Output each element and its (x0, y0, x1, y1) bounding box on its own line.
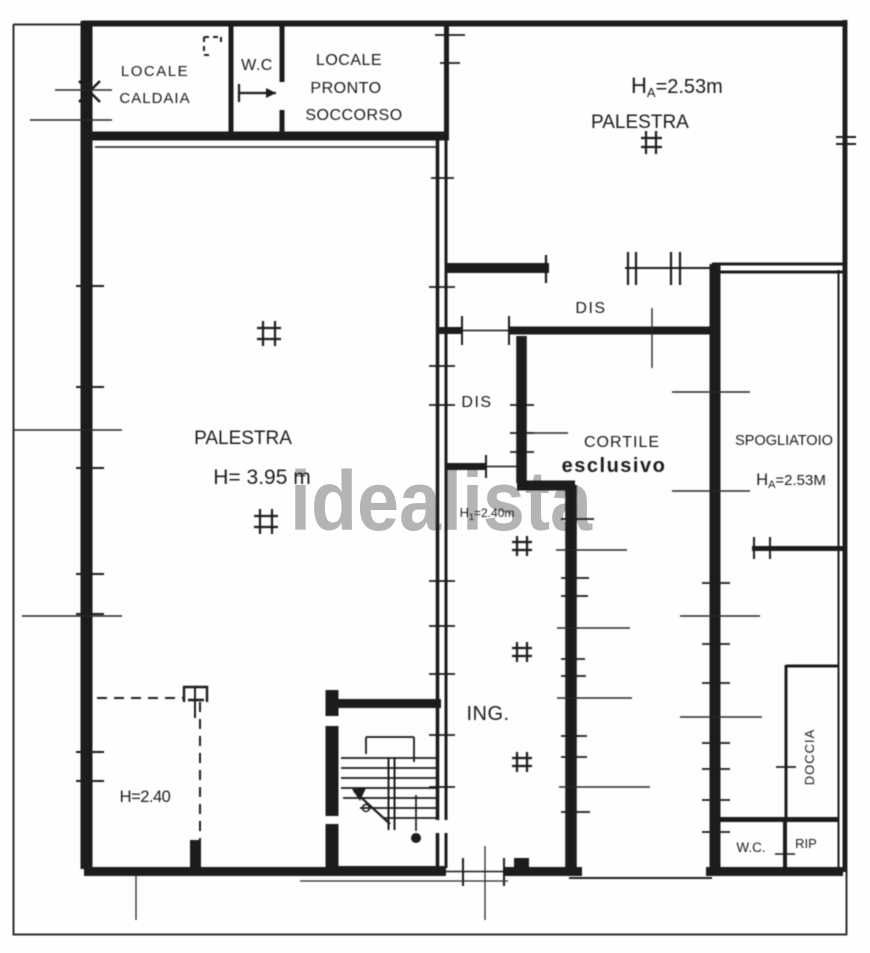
svg-text:W.C.: W.C. (736, 840, 765, 855)
svg-text:H1=2.40m: H1=2.40m (460, 505, 515, 522)
svg-text:SOCCORSO: SOCCORSO (305, 107, 402, 124)
svg-text:DIS: DIS (461, 394, 492, 411)
svg-text:CALDAIA: CALDAIA (119, 90, 190, 107)
svg-text:H=2.40: H=2.40 (120, 788, 171, 806)
svg-text:CORTILE: CORTILE (584, 434, 660, 451)
svg-text:PRONTO: PRONTO (310, 80, 381, 97)
svg-text:idealista: idealista (290, 454, 593, 548)
svg-text:DIS: DIS (575, 300, 606, 317)
svg-text:LOCALE: LOCALE (121, 63, 189, 80)
svg-text:esclusivo: esclusivo (562, 455, 667, 477)
svg-text:DOCCIA: DOCCIA (802, 729, 817, 786)
svg-text:H= 3.95 m: H= 3.95 m (213, 466, 310, 489)
svg-text:LOCALE: LOCALE (316, 52, 382, 69)
svg-text:HA=2.53M: HA=2.53M (756, 471, 826, 491)
svg-text:W.C: W.C (241, 57, 273, 74)
svg-text:RIP: RIP (795, 836, 817, 851)
svg-text:ING.: ING. (466, 703, 509, 725)
svg-text:SPOGLIATOIO: SPOGLIATOIO (735, 433, 833, 449)
svg-text:PALESTRA: PALESTRA (591, 112, 689, 133)
svg-text:HA=2.53m: HA=2.53m (631, 73, 723, 100)
svg-text:PALESTRA: PALESTRA (194, 428, 292, 449)
